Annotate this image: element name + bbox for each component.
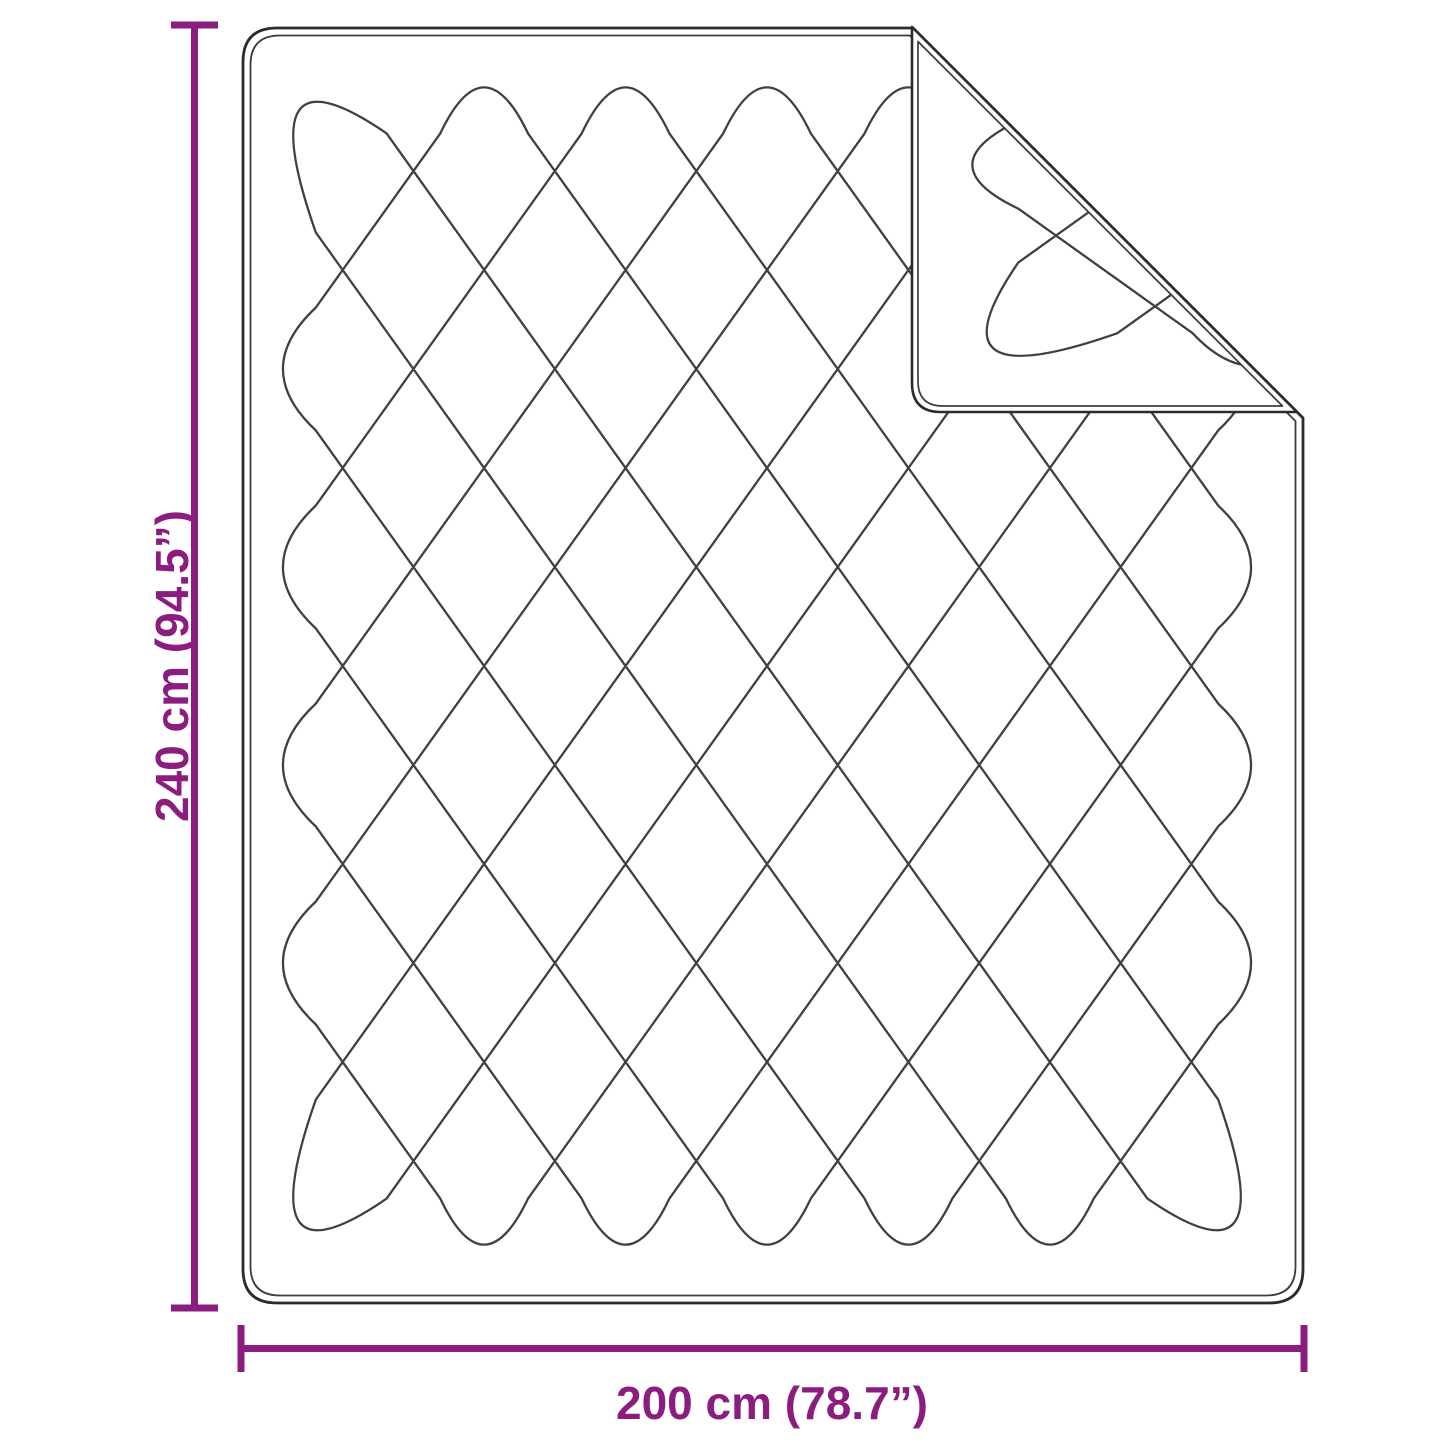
blanket-body-fill — [243, 28, 1303, 1303]
height-dimension-label: 240 cm (94.5”) — [146, 510, 198, 822]
width-dimension-label: 200 cm (78.7”) — [616, 1377, 928, 1429]
dimension-diagram: 240 cm (94.5”) 200 cm (78.7”) — [0, 0, 1445, 1445]
blanket-illustration — [243, 0, 1445, 1303]
blanket-figure-svg: 240 cm (94.5”) 200 cm (78.7”) — [0, 0, 1445, 1445]
